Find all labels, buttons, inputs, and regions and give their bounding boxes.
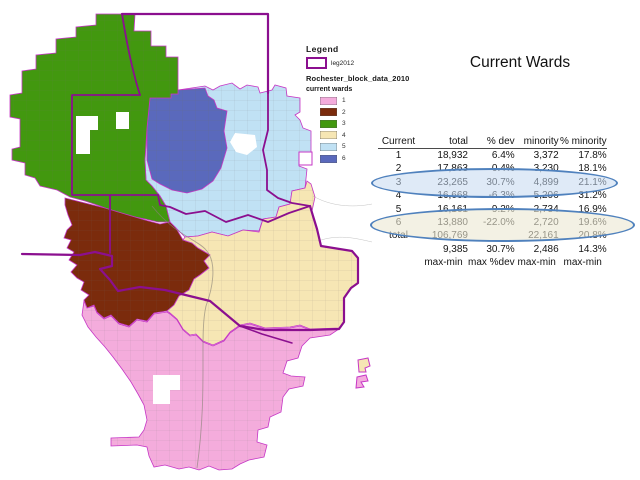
table-cell: 2,486 bbox=[515, 243, 559, 256]
table-cell: 3 bbox=[378, 176, 419, 189]
ward-4-swatch bbox=[320, 131, 337, 139]
table-cell: 0.4% bbox=[468, 162, 515, 175]
col-header: total bbox=[419, 132, 468, 149]
table-maxmin-values-row: 9,385 30.7% 2,486 14.3% bbox=[378, 243, 607, 256]
table-total-row: total 106,769 22,161 20.8% bbox=[378, 229, 607, 242]
table-cell: 16,161 bbox=[419, 203, 468, 216]
legend-item-ward-1: 1 bbox=[320, 97, 426, 105]
table-cell: 9,385 bbox=[419, 243, 468, 256]
table-cell: 1 bbox=[378, 149, 419, 163]
ward-data-table: Current total % dev minority % minority … bbox=[378, 132, 607, 270]
table-cell bbox=[468, 229, 515, 242]
col-header: % minority bbox=[559, 132, 607, 149]
ward-5-swatch bbox=[320, 143, 337, 151]
ward-1-swatch bbox=[320, 97, 337, 105]
table-cell: 21.1% bbox=[559, 176, 607, 189]
table-cell: 106,769 bbox=[419, 229, 468, 242]
table-cell: 4,899 bbox=[515, 176, 559, 189]
table-row: 4 16,668 -6.3% 5,206 31.2% bbox=[378, 189, 607, 202]
table-cell: 3,372 bbox=[515, 149, 559, 163]
table-cell: 23,265 bbox=[419, 176, 468, 189]
ward-2-swatch bbox=[320, 108, 337, 116]
outside-roads bbox=[313, 196, 372, 242]
table-cell: 18.1% bbox=[559, 162, 607, 175]
table-row: 2 17,863 0.4% 3,230 18.1% bbox=[378, 162, 607, 175]
table-cell: 13,880 bbox=[419, 216, 468, 229]
legend-item-ward-2: 2 bbox=[320, 108, 426, 116]
table-cell: total bbox=[378, 229, 419, 242]
table-cell: max %dev bbox=[468, 256, 515, 269]
slide: Legend leg2012 Rochester_block_data_2010… bbox=[0, 0, 640, 480]
table-cell: max-min bbox=[515, 256, 559, 269]
table-cell: 5 bbox=[378, 203, 419, 216]
legend-layer-label: current wards bbox=[306, 86, 426, 93]
table-cell: -9.2% bbox=[468, 203, 515, 216]
table-cell: 2,720 bbox=[515, 216, 559, 229]
legend-title: Legend bbox=[306, 44, 426, 54]
table-cell: 31.2% bbox=[559, 189, 607, 202]
legend-dataset-label: Rochester_block_data_2010 bbox=[306, 74, 426, 83]
ward-6-swatch bbox=[320, 155, 337, 163]
table-cell: 2,734 bbox=[515, 203, 559, 216]
table-cell: 19.6% bbox=[559, 216, 607, 229]
table-cell: 22,161 bbox=[515, 229, 559, 242]
legend-item-ward-3: 3 bbox=[320, 120, 426, 128]
table-row: 1 18,932 6.4% 3,372 17.8% bbox=[378, 149, 607, 163]
legend-item-leg2012: leg2012 bbox=[306, 57, 426, 69]
table-cell: 17.8% bbox=[559, 149, 607, 163]
col-header: minority bbox=[515, 132, 559, 149]
table-cell: 18,932 bbox=[419, 149, 468, 163]
table-header-row: Current total % dev minority % minority bbox=[378, 132, 607, 149]
leg2012-label: leg2012 bbox=[331, 60, 354, 67]
table-cell: 2 bbox=[378, 162, 419, 175]
table-cell: 20.8% bbox=[559, 229, 607, 242]
table-row: 3 23,265 30.7% 4,899 21.1% bbox=[378, 176, 607, 189]
table-cell: 4 bbox=[378, 189, 419, 202]
table-cell: 5,206 bbox=[515, 189, 559, 202]
table-cell: 16,668 bbox=[419, 189, 468, 202]
table-cell: 6.4% bbox=[468, 149, 515, 163]
table-cell: 6 bbox=[378, 216, 419, 229]
table-maxmin-labels-row: max-min max %dev max-min max-min bbox=[378, 256, 607, 269]
col-header: Current bbox=[378, 132, 419, 149]
table-cell bbox=[378, 243, 419, 256]
table-cell: 30.7% bbox=[468, 243, 515, 256]
table-cell: 14.3% bbox=[559, 243, 607, 256]
table-row: 5 16,161 -9.2% 2,734 16.9% bbox=[378, 203, 607, 216]
table-cell: 16.9% bbox=[559, 203, 607, 216]
table-cell bbox=[378, 256, 419, 269]
table-cell: 30.7% bbox=[468, 176, 515, 189]
leg2012-swatch bbox=[306, 57, 327, 69]
table-cell: max-min bbox=[419, 256, 468, 269]
table-cell: 3,230 bbox=[515, 162, 559, 175]
table-cell: 17,863 bbox=[419, 162, 468, 175]
table-cell: max-min bbox=[559, 256, 607, 269]
table-cell: -22.0% bbox=[468, 216, 515, 229]
page-title: Current Wards bbox=[430, 54, 610, 72]
ward-3-swatch bbox=[320, 120, 337, 128]
col-header: % dev bbox=[468, 132, 515, 149]
table-cell: -6.3% bbox=[468, 189, 515, 202]
table-row: 6 13,880 -22.0% 2,720 19.6% bbox=[378, 216, 607, 229]
